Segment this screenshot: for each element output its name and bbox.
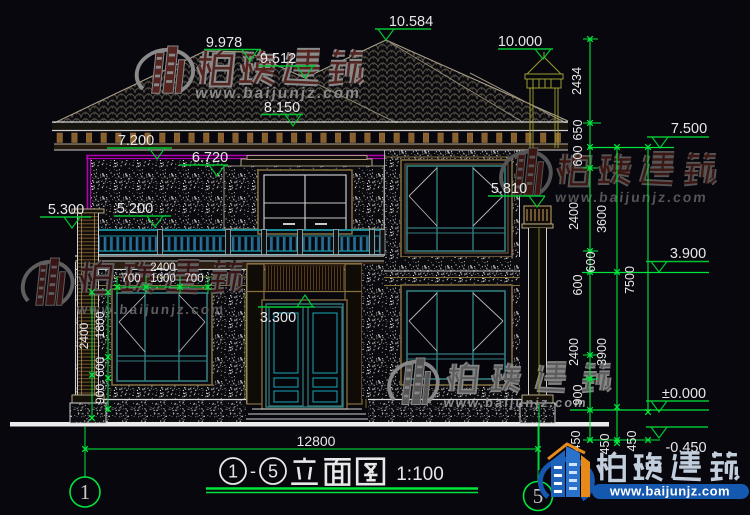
svg-text:450: 450 bbox=[598, 434, 612, 455]
svg-text:1: 1 bbox=[80, 480, 91, 504]
svg-text:-: - bbox=[250, 461, 256, 481]
svg-text:2400: 2400 bbox=[567, 338, 581, 366]
svg-text:5.810: 5.810 bbox=[491, 181, 527, 197]
svg-text:900: 900 bbox=[571, 385, 585, 406]
svg-text:5: 5 bbox=[268, 462, 278, 482]
svg-text:600: 600 bbox=[93, 357, 107, 377]
svg-text:10.584: 10.584 bbox=[389, 14, 433, 30]
svg-text:5.200: 5.200 bbox=[117, 201, 153, 217]
svg-text:1000: 1000 bbox=[150, 273, 176, 285]
svg-text:900: 900 bbox=[93, 384, 107, 404]
svg-text:600: 600 bbox=[584, 252, 598, 273]
svg-text:7.200: 7.200 bbox=[118, 133, 154, 149]
svg-text:3900: 3900 bbox=[595, 338, 609, 366]
svg-text:3600: 3600 bbox=[595, 205, 609, 233]
svg-text:6.720: 6.720 bbox=[192, 150, 228, 166]
svg-text:600: 600 bbox=[571, 146, 585, 167]
svg-text:700: 700 bbox=[121, 273, 140, 285]
svg-text:7500: 7500 bbox=[623, 266, 637, 294]
svg-text:1800: 1800 bbox=[93, 311, 107, 338]
svg-text:1:100: 1:100 bbox=[396, 464, 444, 485]
svg-text:www.baijunjz.com: www.baijunjz.com bbox=[609, 484, 730, 499]
svg-text:1: 1 bbox=[228, 462, 238, 482]
svg-text:700: 700 bbox=[184, 273, 203, 285]
svg-text:3.900: 3.900 bbox=[670, 246, 706, 262]
svg-text:8.150: 8.150 bbox=[264, 100, 300, 116]
svg-text:5.300: 5.300 bbox=[48, 202, 84, 218]
svg-text:3.300: 3.300 bbox=[260, 310, 296, 326]
svg-text:9.512: 9.512 bbox=[260, 51, 296, 67]
svg-text:650: 650 bbox=[571, 120, 585, 141]
svg-text:2434: 2434 bbox=[570, 67, 584, 95]
svg-text:450: 450 bbox=[625, 431, 639, 452]
svg-text:600: 600 bbox=[571, 275, 585, 296]
svg-text:2400: 2400 bbox=[567, 202, 581, 230]
svg-text:9.978: 9.978 bbox=[206, 35, 242, 51]
svg-text:10.000: 10.000 bbox=[498, 34, 542, 50]
svg-text:www.baijunjz.com: www.baijunjz.com bbox=[442, 395, 589, 410]
svg-text:7.500: 7.500 bbox=[671, 121, 707, 137]
svg-text:±0.000: ±0.000 bbox=[662, 386, 706, 402]
svg-text:2400: 2400 bbox=[77, 322, 91, 349]
svg-text:12800: 12800 bbox=[297, 433, 336, 449]
